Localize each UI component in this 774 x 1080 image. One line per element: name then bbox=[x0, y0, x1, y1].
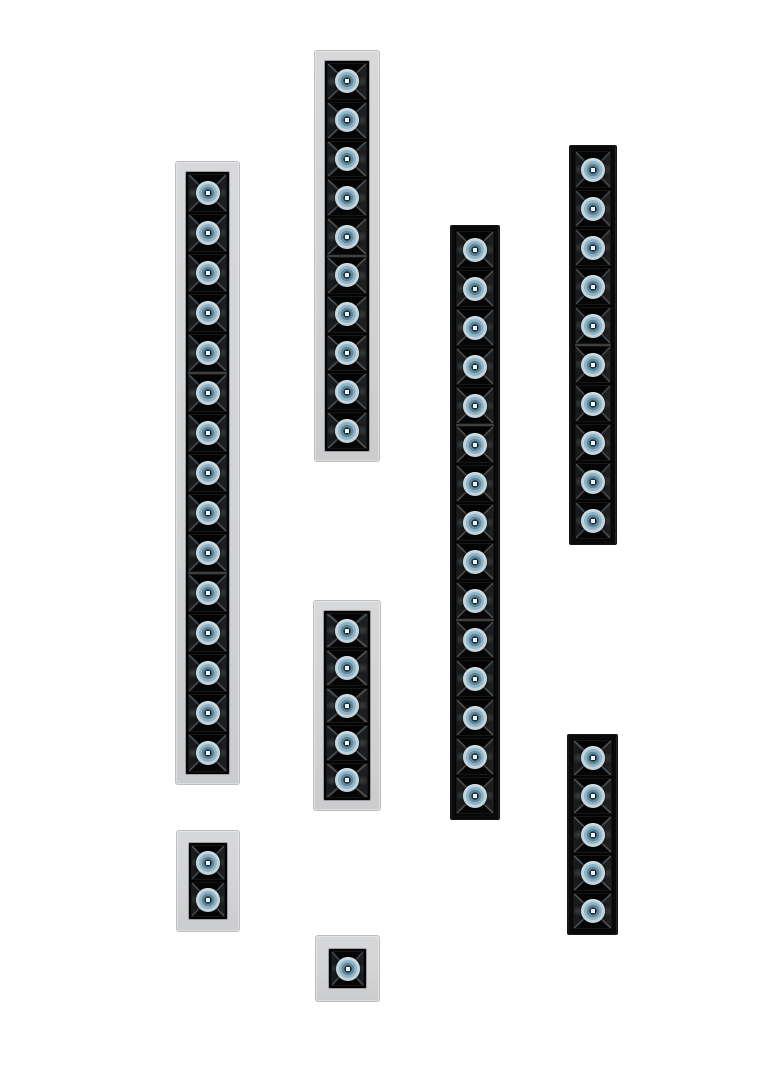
led-lens bbox=[581, 353, 605, 377]
led-cell bbox=[575, 151, 611, 188]
led-cell bbox=[188, 454, 227, 492]
reflector-channel bbox=[324, 611, 370, 800]
led-cell bbox=[456, 387, 494, 424]
led-cell bbox=[188, 534, 227, 572]
product-photo bbox=[0, 0, 774, 1080]
led-lens bbox=[196, 541, 220, 565]
led-lens bbox=[463, 472, 487, 496]
led-lens bbox=[196, 701, 220, 725]
led-lens bbox=[463, 277, 487, 301]
led-cell bbox=[188, 574, 227, 612]
led-lens bbox=[463, 784, 487, 808]
led-cell bbox=[188, 294, 227, 332]
led-cell bbox=[575, 463, 611, 500]
led-cell bbox=[327, 102, 367, 139]
led-cell bbox=[573, 893, 612, 929]
led-lens bbox=[581, 470, 605, 494]
led-lens bbox=[196, 741, 220, 765]
unit-white-1-cell bbox=[315, 935, 380, 1002]
led-cell bbox=[327, 335, 367, 372]
led-lens bbox=[463, 745, 487, 769]
led-lens bbox=[335, 263, 359, 287]
led-lens bbox=[335, 341, 359, 365]
led-cell bbox=[456, 309, 494, 346]
led-lens bbox=[581, 236, 605, 260]
led-cell bbox=[327, 412, 367, 449]
led-lens bbox=[463, 355, 487, 379]
led-lens bbox=[335, 302, 359, 326]
led-lens bbox=[581, 861, 605, 885]
led-lens bbox=[463, 238, 487, 262]
led-lens bbox=[463, 589, 487, 613]
led-cell bbox=[456, 465, 494, 502]
reflector-channel bbox=[572, 739, 613, 930]
led-cell bbox=[575, 424, 611, 461]
led-lens bbox=[463, 511, 487, 535]
led-lens bbox=[463, 394, 487, 418]
led-cell bbox=[456, 621, 494, 658]
led-cell bbox=[575, 385, 611, 422]
led-lens bbox=[335, 419, 359, 443]
led-lens bbox=[196, 621, 220, 645]
led-cell bbox=[327, 63, 367, 100]
led-cell bbox=[575, 190, 611, 227]
led-lens bbox=[335, 768, 359, 792]
led-cell bbox=[327, 141, 367, 178]
led-lens bbox=[196, 261, 220, 285]
led-lens bbox=[335, 69, 359, 93]
led-cell bbox=[456, 738, 494, 775]
led-cell bbox=[575, 229, 611, 266]
strip-white-10-cell bbox=[314, 50, 380, 462]
led-cell bbox=[327, 296, 367, 333]
led-lens bbox=[196, 661, 220, 685]
led-cell bbox=[188, 174, 227, 212]
led-cell bbox=[573, 855, 612, 891]
led-cell bbox=[456, 699, 494, 736]
led-cell bbox=[188, 494, 227, 532]
led-cell bbox=[188, 374, 227, 412]
led-lens bbox=[335, 108, 359, 132]
led-lens bbox=[335, 380, 359, 404]
led-lens bbox=[463, 667, 487, 691]
reflector-channel bbox=[574, 150, 612, 540]
led-cell bbox=[575, 307, 611, 344]
led-cell bbox=[188, 654, 227, 692]
led-lens bbox=[581, 746, 605, 770]
led-lens bbox=[463, 316, 487, 340]
led-lens bbox=[335, 186, 359, 210]
led-lens bbox=[196, 181, 220, 205]
led-cell bbox=[575, 502, 611, 539]
led-cell bbox=[456, 543, 494, 580]
led-lens bbox=[581, 314, 605, 338]
led-lens bbox=[581, 197, 605, 221]
led-cell bbox=[575, 346, 611, 383]
led-cell bbox=[456, 426, 494, 463]
led-cell bbox=[191, 845, 225, 880]
led-cell bbox=[188, 334, 227, 372]
reflector-channel bbox=[455, 230, 495, 815]
led-lens bbox=[196, 461, 220, 485]
led-lens bbox=[196, 501, 220, 525]
reflector-channel bbox=[329, 949, 366, 988]
led-lens bbox=[463, 706, 487, 730]
led-lens bbox=[335, 225, 359, 249]
led-cell bbox=[575, 268, 611, 305]
led-cell bbox=[456, 270, 494, 307]
reflector-channel bbox=[325, 61, 369, 451]
led-cell bbox=[573, 740, 612, 776]
led-cell bbox=[456, 777, 494, 814]
led-lens bbox=[581, 158, 605, 182]
led-cell bbox=[456, 348, 494, 385]
led-cell bbox=[573, 778, 612, 814]
led-lens bbox=[335, 694, 359, 718]
led-lens bbox=[335, 731, 359, 755]
led-cell bbox=[326, 725, 368, 760]
led-cell bbox=[188, 214, 227, 252]
led-cell bbox=[326, 613, 368, 648]
led-lens bbox=[463, 433, 487, 457]
unit-white-2-cell bbox=[176, 830, 240, 932]
strip-black-5-cell bbox=[567, 734, 618, 935]
led-lens bbox=[335, 147, 359, 171]
led-cell bbox=[188, 694, 227, 732]
led-lens bbox=[196, 381, 220, 405]
led-cell bbox=[456, 582, 494, 619]
led-cell bbox=[326, 763, 368, 798]
strip-white-15-cell bbox=[175, 161, 240, 785]
led-lens bbox=[581, 899, 605, 923]
led-cell bbox=[188, 734, 227, 772]
led-cell bbox=[188, 614, 227, 652]
strip-black-10-cell bbox=[569, 145, 617, 545]
led-lens bbox=[463, 550, 487, 574]
led-cell bbox=[191, 882, 225, 917]
led-lens bbox=[581, 823, 605, 847]
led-cell bbox=[331, 951, 364, 986]
led-lens bbox=[581, 431, 605, 455]
led-cell bbox=[327, 257, 367, 294]
led-cell bbox=[327, 179, 367, 216]
led-lens bbox=[581, 392, 605, 416]
led-cell bbox=[456, 504, 494, 541]
led-cell bbox=[456, 660, 494, 697]
led-lens bbox=[196, 421, 220, 445]
led-cell bbox=[188, 414, 227, 452]
led-lens bbox=[196, 221, 220, 245]
strip-white-5-cell bbox=[313, 600, 381, 811]
led-cell bbox=[327, 218, 367, 255]
led-lens bbox=[336, 957, 360, 981]
led-lens bbox=[196, 888, 220, 912]
reflector-channel bbox=[186, 172, 229, 774]
led-lens bbox=[196, 341, 220, 365]
led-lens bbox=[196, 851, 220, 875]
led-lens bbox=[463, 628, 487, 652]
led-cell bbox=[573, 816, 612, 852]
led-lens bbox=[581, 275, 605, 299]
led-lens bbox=[196, 301, 220, 325]
led-lens bbox=[581, 509, 605, 533]
strip-black-15-cell bbox=[450, 225, 500, 820]
led-cell bbox=[188, 254, 227, 292]
led-cell bbox=[327, 373, 367, 410]
led-cell bbox=[326, 688, 368, 723]
led-lens bbox=[335, 619, 359, 643]
led-cell bbox=[326, 650, 368, 685]
led-lens bbox=[335, 656, 359, 680]
led-lens bbox=[581, 784, 605, 808]
led-lens bbox=[196, 581, 220, 605]
reflector-channel bbox=[189, 843, 227, 919]
led-cell bbox=[456, 231, 494, 268]
